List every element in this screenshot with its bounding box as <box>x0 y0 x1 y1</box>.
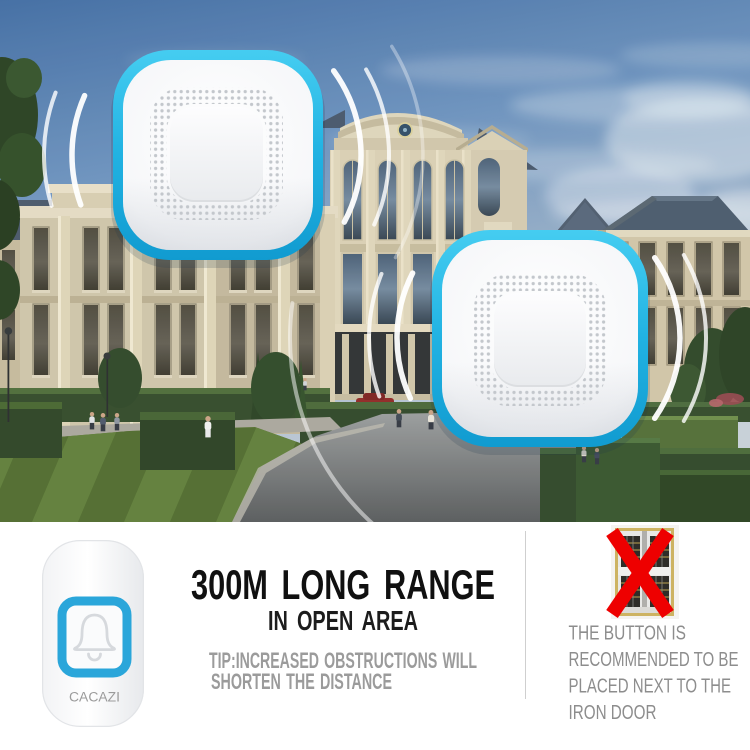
svg-text:300M LONG RANGE: 300M LONG RANGE <box>191 561 495 608</box>
svg-text:CACAZI: CACAZI <box>69 690 120 705</box>
svg-text:PLACED NEXT TO THE: PLACED NEXT TO THE <box>569 675 732 698</box>
svg-text:IRON DOOR: IRON DOOR <box>569 701 657 724</box>
svg-text:RECOMMENDED TO BE: RECOMMENDED TO BE <box>569 648 739 671</box>
svg-text:THE BUTTON IS: THE BUTTON IS <box>569 622 687 645</box>
svg-text:SHORTEN THE DISTANCE: SHORTEN THE DISTANCE <box>211 669 392 694</box>
svg-text:IN OPEN AREA: IN OPEN AREA <box>268 605 418 636</box>
